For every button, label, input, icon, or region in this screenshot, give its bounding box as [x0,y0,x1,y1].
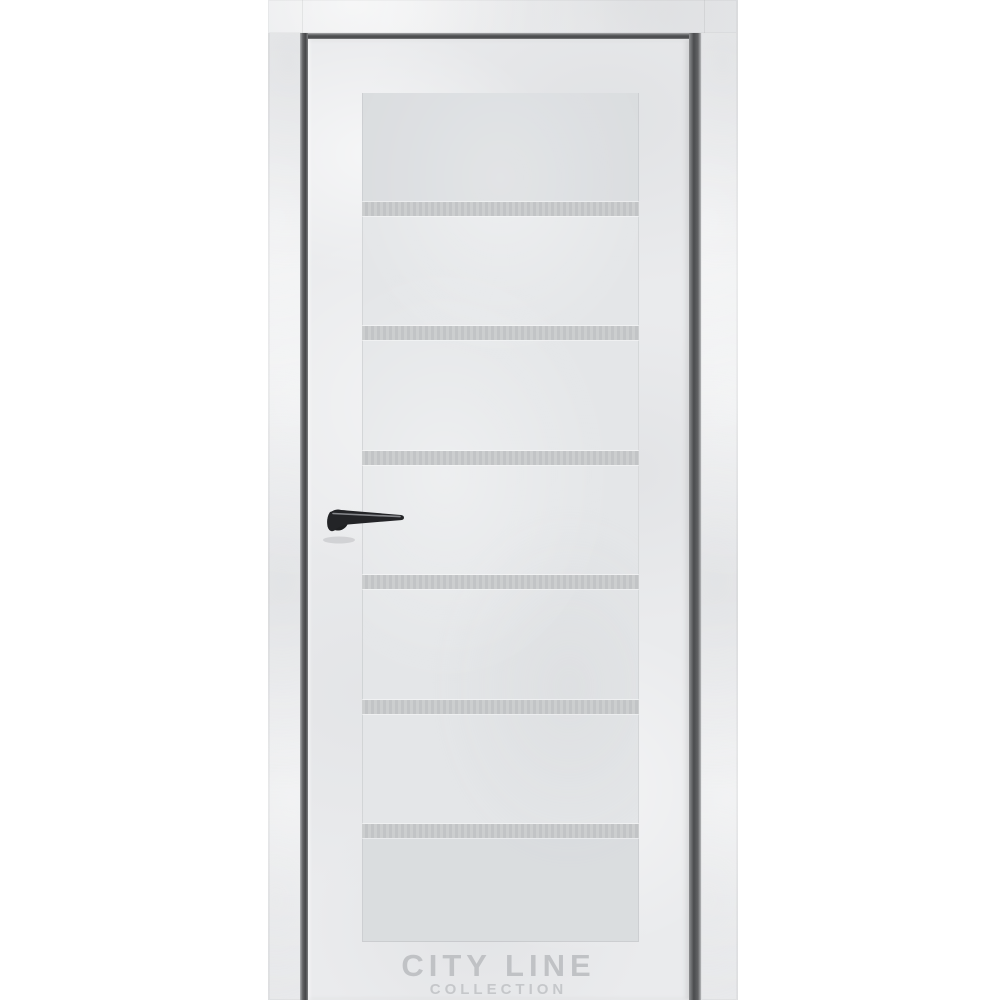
door-panel-top [362,93,639,202]
glass-insert [362,700,639,714]
glass-insert [362,326,639,340]
door-reveal-gap-right [689,33,701,1000]
glass-insert [362,824,639,838]
door-leaf: CITY LINE COLLECTION [308,39,689,1000]
door-reveal-gap-top [300,33,701,39]
door-frame-casing-left [268,0,301,1000]
product-photo: CITY LINE COLLECTION [0,0,1000,1000]
door-frame-casing-top [268,0,737,33]
casing-joint-line [704,0,705,33]
door-reveal-gap-left [300,33,308,1000]
door-panel-bottom [362,838,639,941]
door-handle [315,497,411,547]
door-assembly: CITY LINE COLLECTION [268,0,737,1000]
door-frame-casing-right [701,0,738,1000]
glass-insert [362,575,639,589]
watermark-subtitle: COLLECTION [308,981,689,998]
watermark-title: CITY LINE [308,951,689,981]
handle-shadow [323,537,355,544]
glass-insert [362,202,639,216]
casing-joint-line [302,0,303,33]
watermark: CITY LINE COLLECTION [308,951,689,998]
glass-insert [362,451,639,465]
